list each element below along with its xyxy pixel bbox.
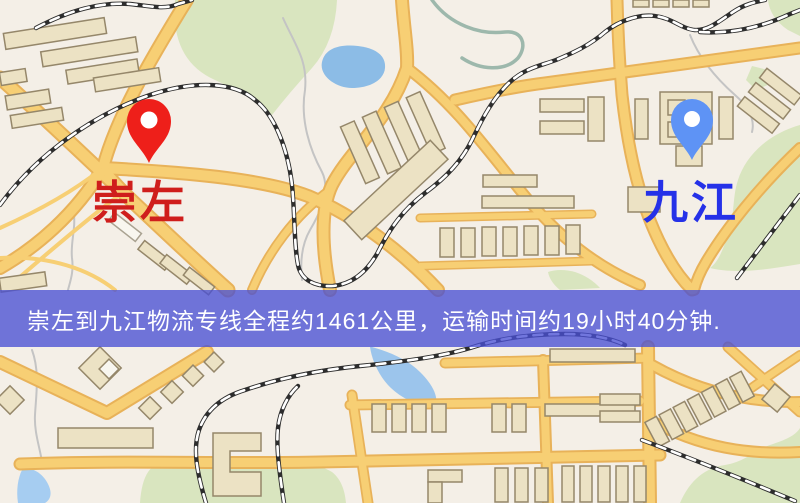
destination-label: 九江 bbox=[643, 177, 739, 228]
origin-pin-hole bbox=[141, 112, 158, 129]
map-canvas[interactable]: 崇左 九江 崇左到九江物流专线全程约1461公里，运输时间约19小时40分钟. bbox=[0, 0, 800, 503]
map-graphics: 崇左 九江 bbox=[0, 0, 800, 503]
destination-pin-hole bbox=[684, 111, 700, 127]
route-summary-text: 崇左到九江物流专线全程约1461公里，运输时间约19小时40分钟. bbox=[27, 302, 721, 336]
route-summary-banner: 崇左到九江物流专线全程约1461公里，运输时间约19小时40分钟. bbox=[0, 290, 800, 347]
origin-label: 崇左 bbox=[92, 177, 188, 228]
